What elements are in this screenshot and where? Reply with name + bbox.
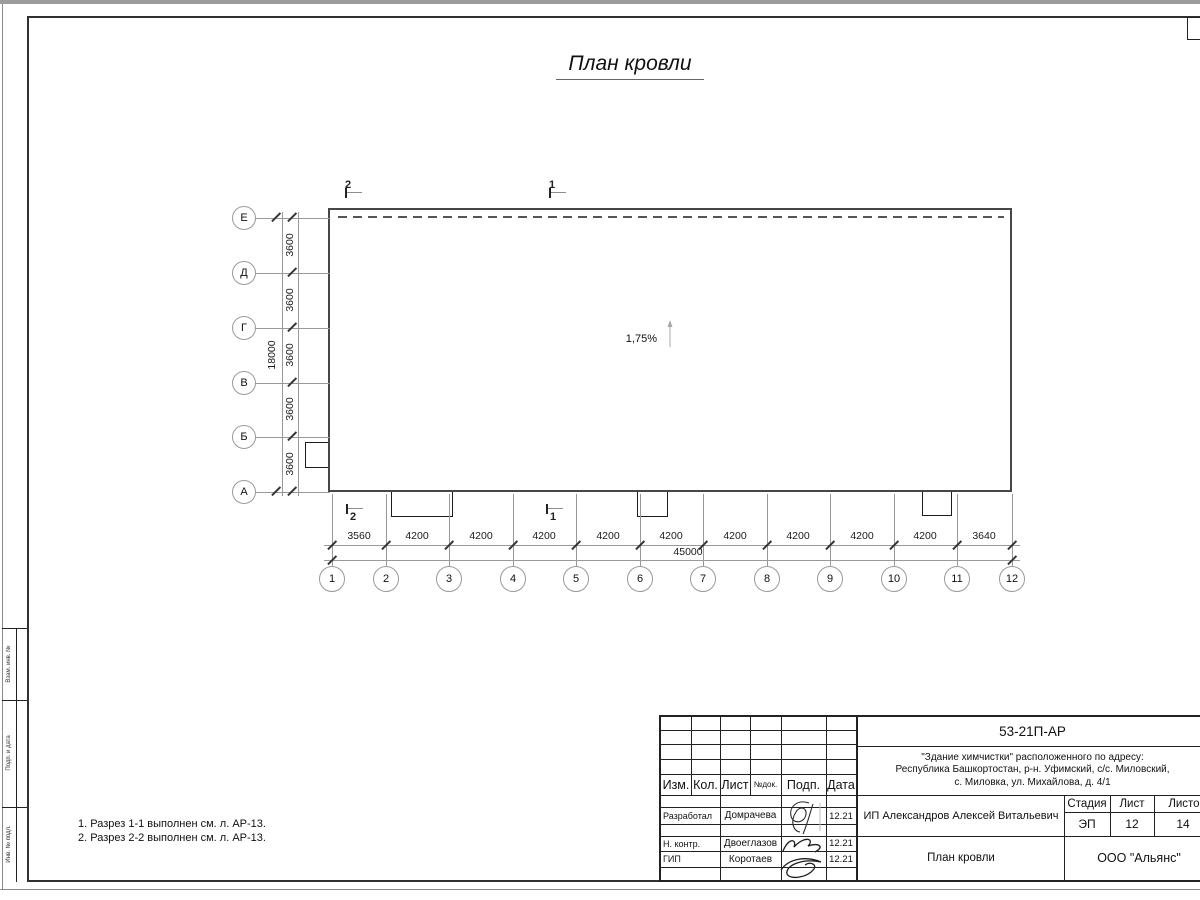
stamp-company: ООО "Альянс" (1064, 836, 1200, 880)
stamp-address-line: "Здание химчистки" расположенного по адр… (921, 752, 1144, 765)
note-line: 1. Разрез 1-1 выполнен см. л. АР-13. (78, 818, 266, 832)
axis-line (256, 218, 330, 219)
section-mark-label: 2 (346, 510, 360, 523)
axis-line (957, 494, 958, 566)
section-mark-label: 1 (545, 178, 559, 191)
axis-bubble-col: 10 (881, 566, 907, 592)
axis-line (256, 273, 330, 274)
slope-arrow-icon (663, 317, 677, 349)
axis-bubble-row: Д (232, 261, 256, 285)
dimension-chain-line (324, 545, 1020, 546)
dim-total-label: 45000 (673, 546, 702, 558)
note-line: 2. Разрез 2-2 выполнен см. л. АР-13. (78, 832, 266, 846)
dim-label: 3560 (347, 530, 370, 542)
stamp-col-header: Кол. (691, 774, 720, 795)
axis-line (256, 328, 330, 329)
dim-total-label: 18000 (266, 340, 278, 369)
axis-line (767, 494, 768, 566)
strip-label: Инв. № подл. (6, 825, 12, 862)
stamp-client: ИП Александров Алексей Витальевич (858, 795, 1064, 836)
stamp-col-header: №док. (750, 774, 781, 795)
stamp-sheets-value: 14 (1154, 812, 1200, 836)
axis-bubble-row: Г (232, 316, 256, 340)
stamp-stage-label: Стадия (1064, 795, 1110, 812)
dimension-chain-line (282, 212, 283, 496)
stamp-line (661, 759, 856, 760)
dim-label: 3600 (284, 233, 296, 256)
stamp-line (661, 744, 856, 745)
roof-canopy-2 (637, 491, 668, 517)
drawing-sheet: Взам. инв. № Подп. и дата Инв. № подл. П… (0, 0, 1200, 900)
stamp-address: "Здание химчистки" расположенного по адр… (858, 748, 1200, 793)
stamp-name: Двоеглазов (720, 836, 781, 851)
stamp-sheet-label: Лист (1110, 795, 1154, 812)
axis-bubble-col: 1 (319, 566, 345, 592)
axis-bubble-row: А (232, 480, 256, 504)
stamp-line (858, 746, 1200, 747)
axis-bubble-col: 2 (373, 566, 399, 592)
section-mark-label: 1 (546, 510, 560, 523)
strip-label: Подп. и дата (6, 735, 12, 770)
stamp-sheets-label: Листов (1154, 795, 1200, 812)
axis-line (576, 494, 577, 566)
strip-label: Взам. инв. № (6, 645, 12, 682)
axis-line (1012, 494, 1013, 566)
roof-canopy-1 (391, 491, 453, 517)
dimension-chain-line (324, 560, 1020, 561)
signature (777, 833, 831, 880)
stamp-doc-number: 53-21П-АР (858, 717, 1200, 746)
paper-edge-left (2, 4, 3, 890)
axis-bubble-col: 3 (436, 566, 462, 592)
axis-line (703, 494, 704, 566)
section-mark-line (551, 192, 566, 193)
stamp-sheet-title: План кровли (858, 836, 1064, 880)
dim-label: 4200 (469, 530, 492, 542)
stamp-col-header: Дата (826, 774, 856, 795)
top-edge-bar (0, 0, 1200, 4)
axis-bubble-col: 6 (627, 566, 653, 592)
section-mark-line (548, 508, 563, 509)
section-mark-line (348, 508, 363, 509)
dim-label: 4200 (850, 530, 873, 542)
page-title: План кровли (556, 54, 704, 80)
dim-label: 3600 (284, 397, 296, 420)
section-mark-line (347, 192, 362, 193)
axis-bubble-col: 12 (999, 566, 1025, 592)
paper-edge-bottom (0, 889, 1200, 890)
building-outline (328, 208, 1012, 492)
strip-divider-v (16, 628, 17, 882)
corner-stamp-box (1187, 17, 1200, 40)
axis-bubble-col: 4 (500, 566, 526, 592)
title-block: Изм. Кол. Лист №док. Подп. Дата Разработ… (659, 715, 1200, 882)
roof-canopy-left (305, 442, 330, 468)
stamp-stage-value: ЭП (1064, 812, 1110, 836)
stamp-role: ГИП (663, 851, 720, 867)
dim-label: 3600 (284, 343, 296, 366)
axis-line (513, 494, 514, 566)
axis-line (256, 492, 330, 493)
dim-label: 4200 (659, 530, 682, 542)
axis-line (830, 494, 831, 566)
axis-line (640, 494, 641, 566)
stamp-address-line: Республика Башкортостан, р-н. Уфимский, … (895, 764, 1169, 777)
notes-block: 1. Разрез 1-1 выполнен см. л. АР-13. 2. … (78, 818, 266, 845)
stamp-role: Разработал (663, 807, 720, 824)
dim-label: 3640 (972, 530, 995, 542)
signature (781, 797, 827, 837)
stamp-col-header: Лист (720, 774, 750, 795)
axis-line (332, 494, 333, 566)
stamp-name: Коротаев (720, 851, 781, 867)
stamp-col-header: Подп. (781, 774, 826, 795)
section-mark-tick (345, 188, 347, 198)
dimension-chain-line (298, 212, 299, 496)
axis-bubble-row: Е (232, 206, 256, 230)
axis-bubble-row: Б (232, 425, 256, 449)
stamp-name: Домрачева (720, 807, 781, 824)
strip-divider-h (2, 807, 27, 808)
dim-label: 4200 (596, 530, 619, 542)
dim-label: 4200 (532, 530, 555, 542)
axis-bubble-col: 11 (944, 566, 970, 592)
axis-bubble-col: 7 (690, 566, 716, 592)
axis-bubble-col: 5 (563, 566, 589, 592)
axis-line (386, 494, 387, 566)
dim-label: 3600 (284, 288, 296, 311)
roof-canopy-3 (922, 491, 952, 516)
axis-line (449, 494, 450, 566)
stamp-line (661, 730, 856, 731)
axis-line (256, 383, 330, 384)
stamp-role: Н. контр. (663, 836, 720, 851)
section-mark-label: 2 (341, 178, 355, 191)
dim-label: 4200 (723, 530, 746, 542)
stamp-col-header: Изм. (661, 774, 691, 795)
axis-bubble-col: 8 (754, 566, 780, 592)
axis-line (256, 437, 330, 438)
axis-bubble-row: В (232, 371, 256, 395)
stamp-address-line: с. Миловка, ул. Михайлова, д. 4/1 (954, 777, 1110, 790)
section-mark-tick (549, 188, 551, 198)
stamp-date: 12.21 (826, 809, 856, 824)
strip-divider-h (2, 628, 27, 629)
roof-eaves-dashed-line (338, 216, 1004, 219)
axis-line (894, 494, 895, 566)
dim-label: 3600 (284, 452, 296, 475)
axis-bubble-col: 9 (817, 566, 843, 592)
stamp-sheet-value: 12 (1110, 812, 1154, 836)
dim-label: 4200 (913, 530, 936, 542)
slope-label: 1,75% (595, 332, 657, 346)
dim-label: 4200 (786, 530, 809, 542)
strip-divider-h (2, 700, 27, 701)
dim-label: 4200 (405, 530, 428, 542)
